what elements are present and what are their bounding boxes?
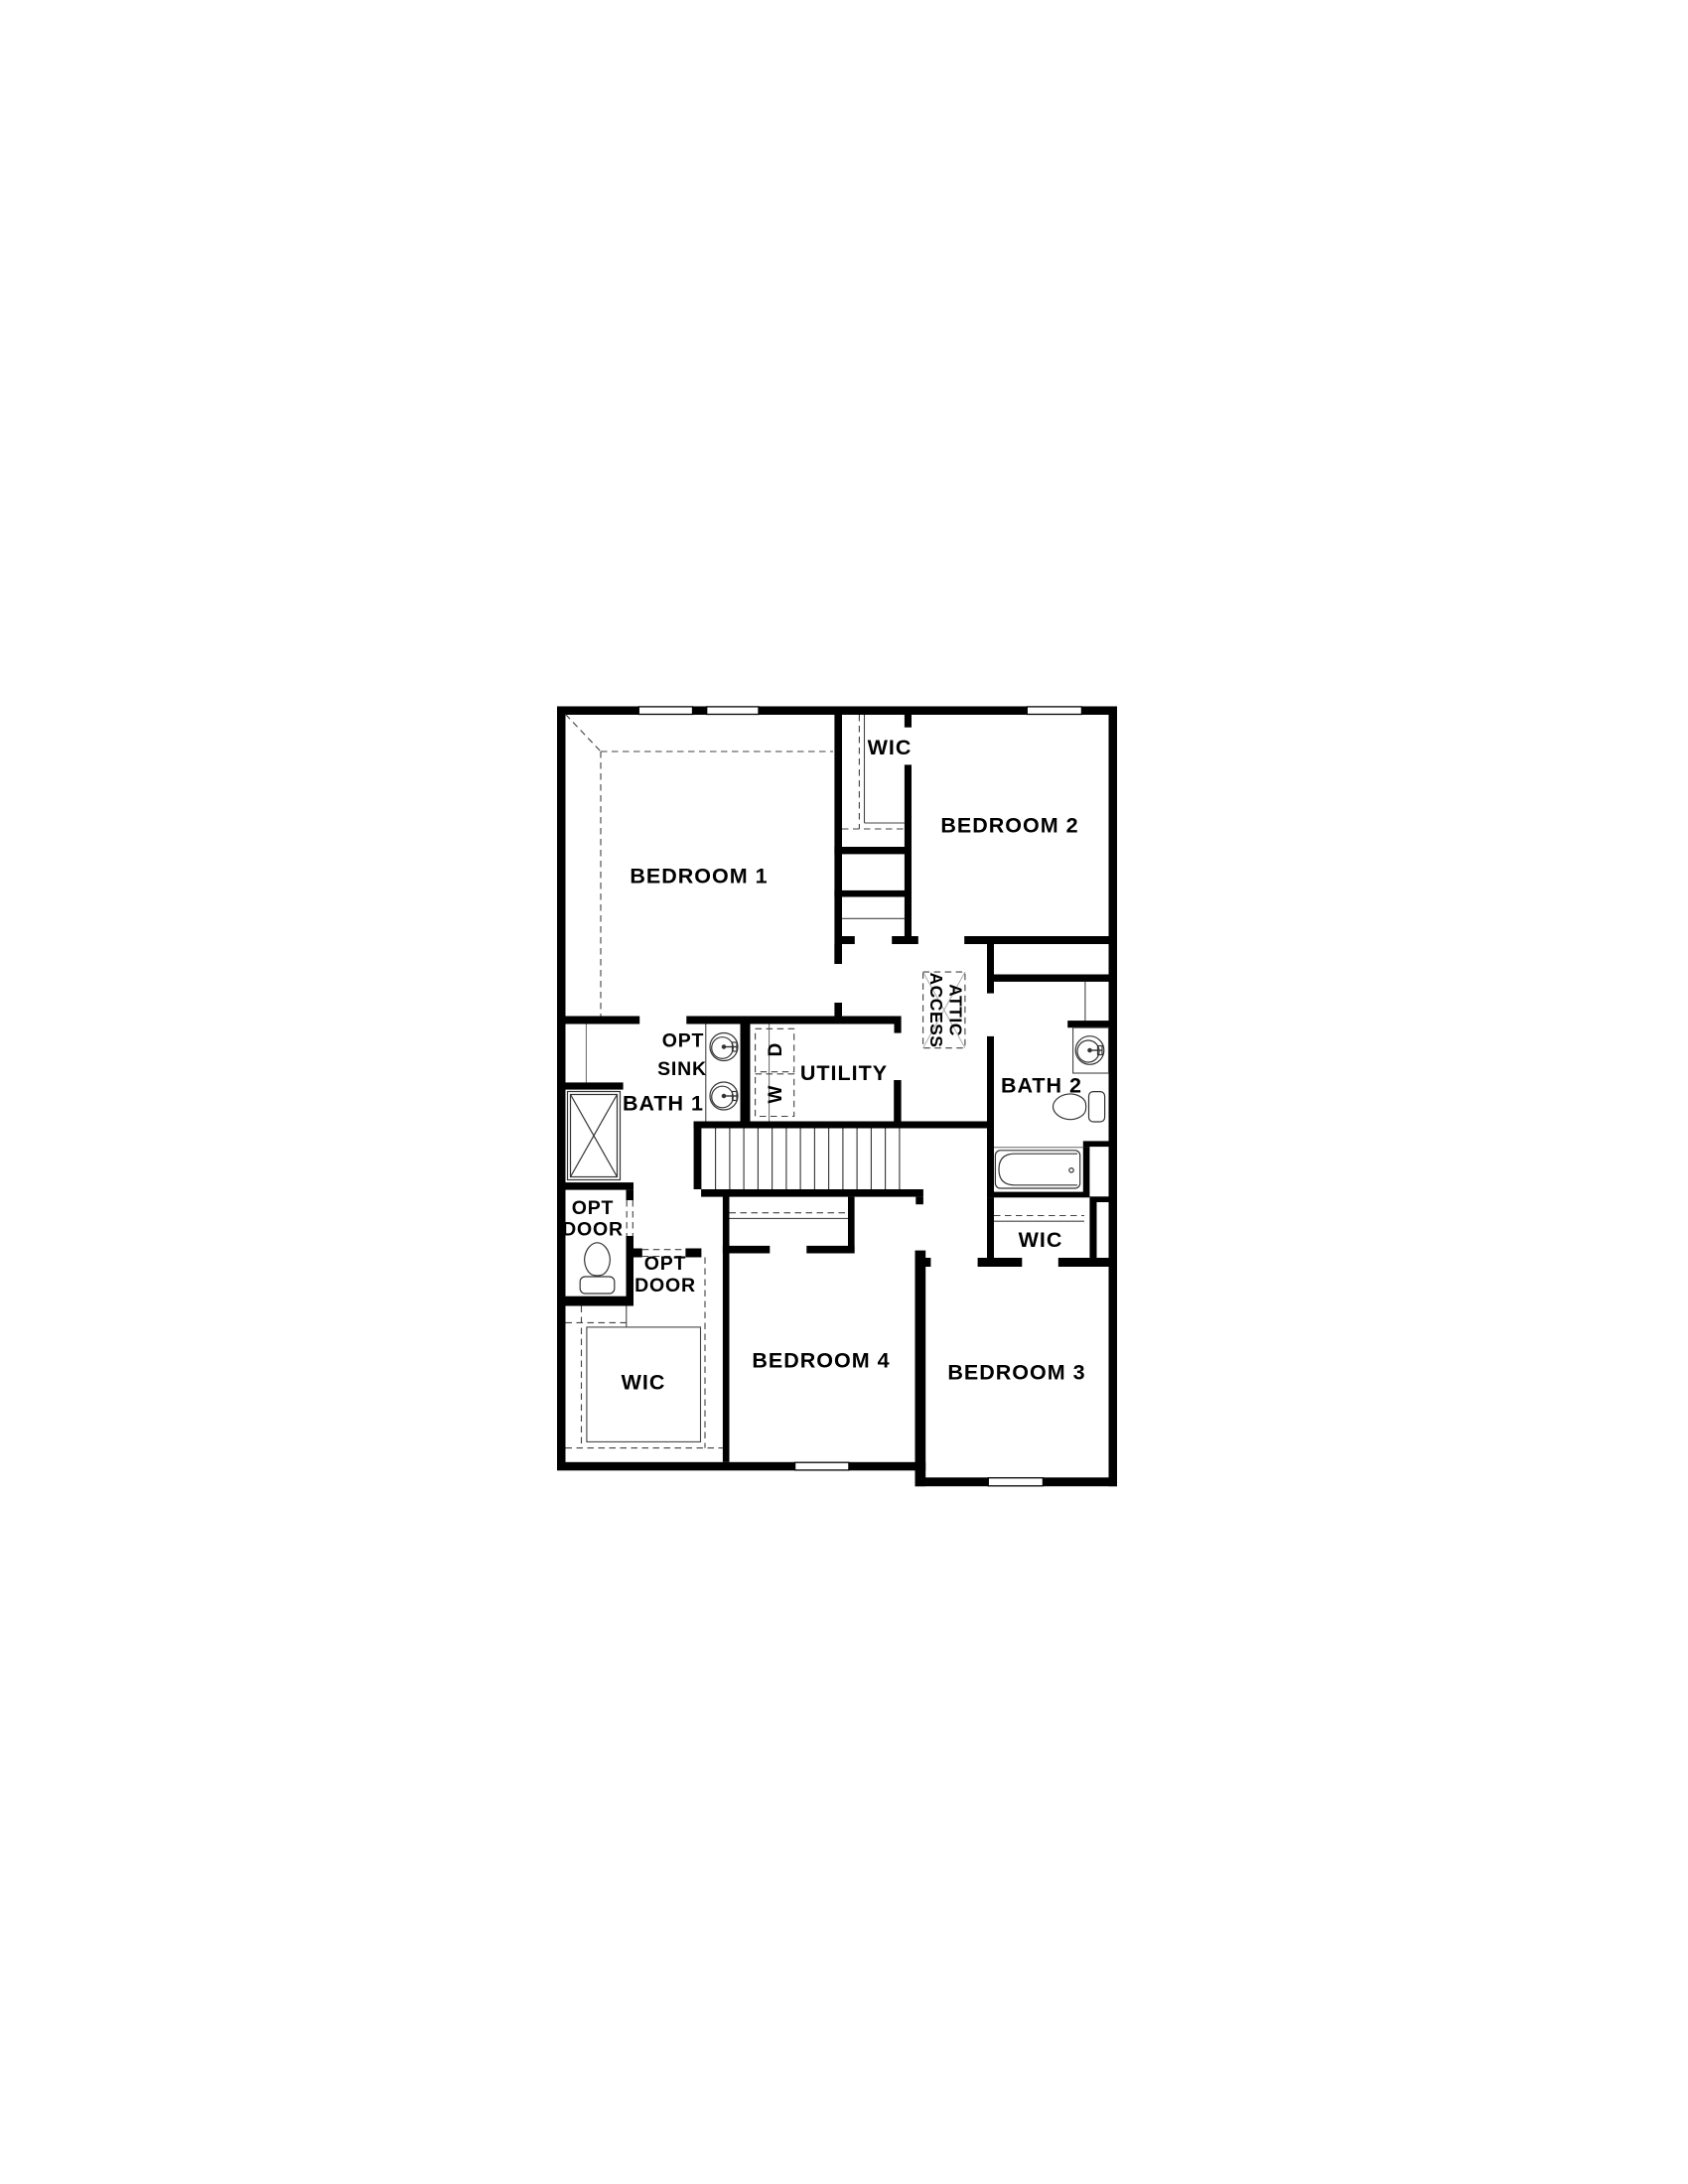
svg-text:D: D [766, 1042, 786, 1057]
svg-text:OPT: OPT [644, 1253, 687, 1275]
svg-text:UTILITY: UTILITY [800, 1061, 888, 1085]
svg-text:BEDROOM 4: BEDROOM 4 [752, 1349, 890, 1373]
svg-text:BEDROOM 3: BEDROOM 3 [947, 1361, 1085, 1385]
svg-text:OPT: OPT [572, 1197, 615, 1219]
svg-text:OPT: OPT [662, 1030, 705, 1052]
svg-text:WIC: WIC [868, 736, 913, 759]
svg-text:DOOR: DOOR [634, 1275, 696, 1297]
svg-text:BATH 1: BATH 1 [623, 1092, 704, 1116]
svg-text:ACCESS: ACCESS [926, 973, 946, 1048]
svg-text:BEDROOM 2: BEDROOM 2 [940, 814, 1078, 838]
svg-text:WIC: WIC [1019, 1228, 1063, 1252]
svg-text:W: W [766, 1085, 786, 1104]
svg-text:SINK: SINK [657, 1058, 707, 1080]
svg-text:WIC: WIC [622, 1371, 666, 1395]
svg-text:ATTIC: ATTIC [946, 984, 966, 1036]
svg-text:DOOR: DOOR [562, 1219, 624, 1241]
svg-text:BEDROOM 1: BEDROOM 1 [630, 865, 768, 888]
